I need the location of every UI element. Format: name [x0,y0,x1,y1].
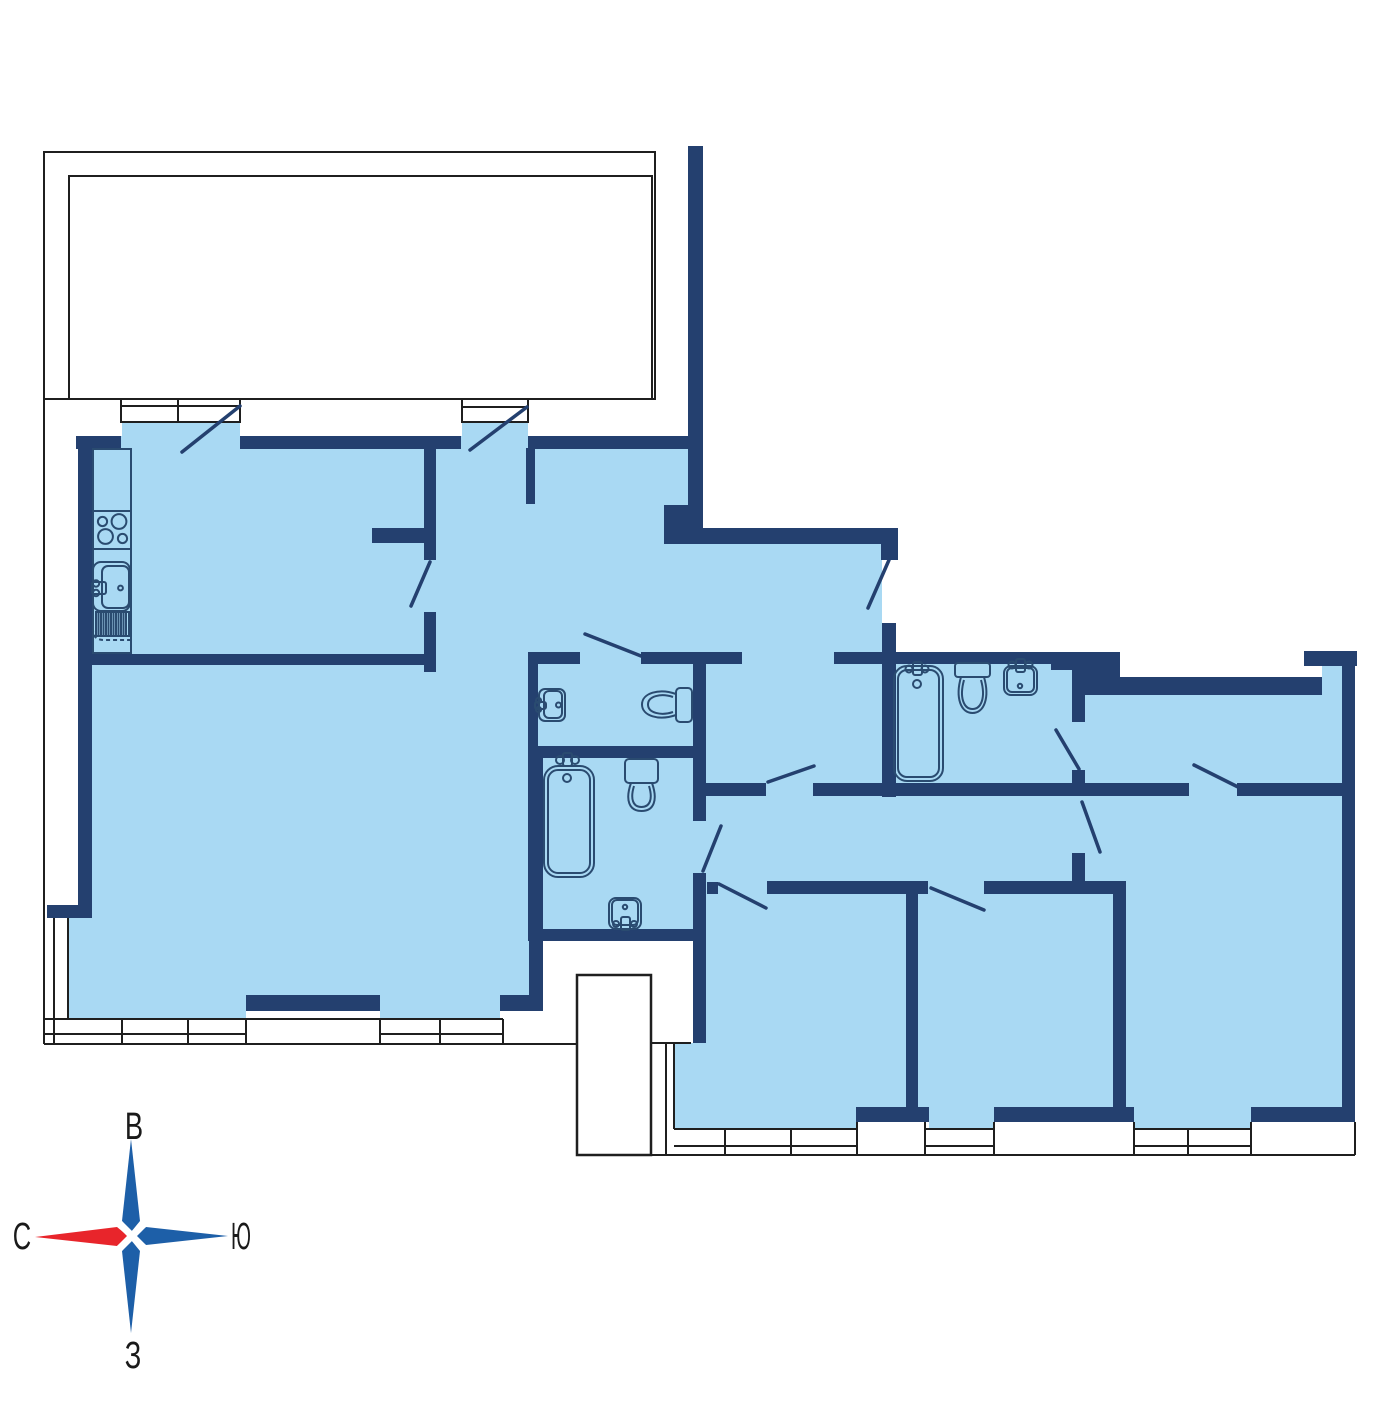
svg-text:В: В [125,1106,143,1148]
svg-text:Ю: Ю [231,1216,251,1257]
svg-text:С: С [13,1215,31,1257]
svg-text:З: З [125,1335,142,1377]
